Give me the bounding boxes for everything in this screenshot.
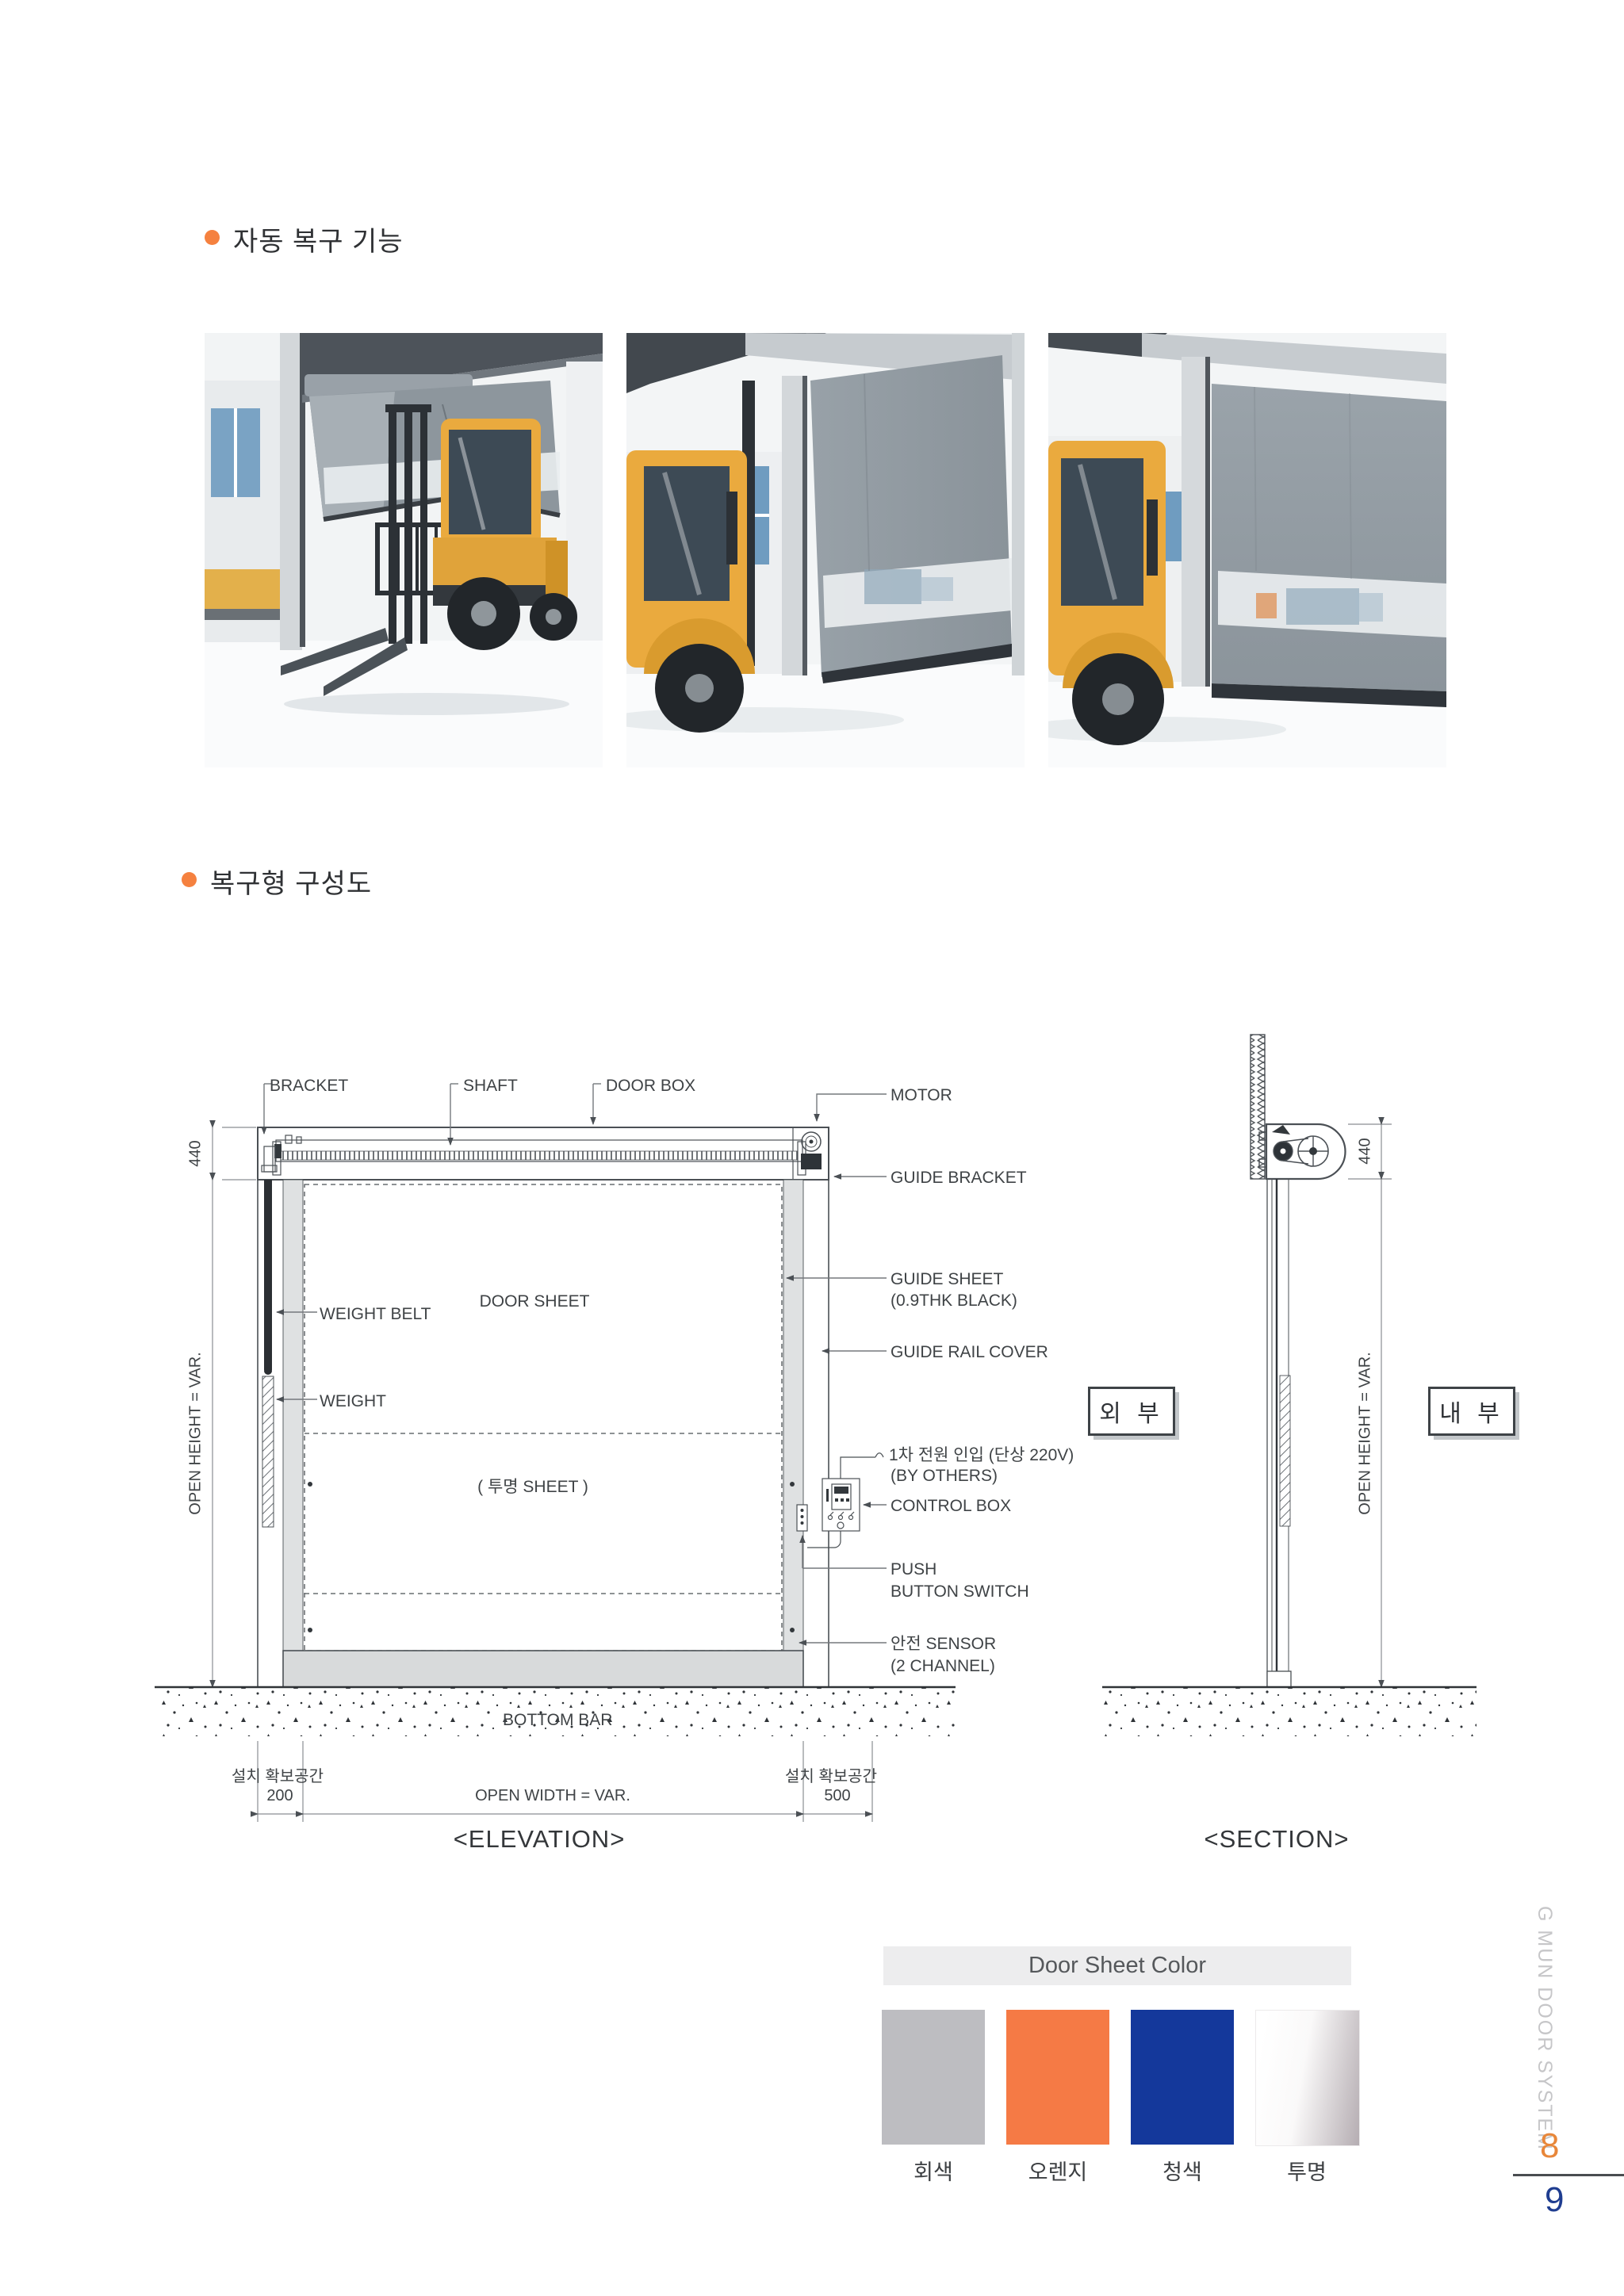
sidebar-vertical-text: G MUN DOOR SYSTEM: [1533, 1906, 1556, 2151]
exterior-label-box: 외 부: [1088, 1387, 1175, 1436]
label-2-channel: (2 CHANNEL): [891, 1655, 995, 1677]
label-guide-sheet: GUIDE SHEET: [891, 1269, 1003, 1290]
bullet-icon: [205, 230, 220, 245]
interior-label-box: 내 부: [1428, 1387, 1515, 1436]
label-door-sheet: DOOR SHEET: [480, 1291, 590, 1312]
swatch-blue: [1131, 2010, 1234, 2145]
swatch-gray: [882, 2010, 985, 2145]
dim-open-width: OPEN WIDTH = VAR.: [475, 1787, 630, 1805]
door-frame: [1182, 357, 1208, 687]
label-weight: WEIGHT: [320, 1391, 386, 1412]
dim-open-height-elevation: OPEN HEIGHT = VAR.: [187, 1352, 205, 1514]
page-number-divider: [1513, 2174, 1624, 2176]
catalog-page: 자동 복구 기능: [0, 0, 1624, 2296]
label-guide-bracket: GUIDE BRACKET: [891, 1167, 1027, 1188]
dim-440-section: 440: [1357, 1138, 1375, 1164]
swatch-orange: [1006, 2010, 1109, 2145]
label-bracket: BRACKET: [270, 1075, 348, 1096]
exterior-label: 외 부: [1099, 1394, 1164, 1429]
section-title-diagram: 복구형 구성도: [210, 862, 372, 901]
interior-label: 내 부: [1439, 1394, 1504, 1429]
color-chart-title: Door Sheet Color: [1028, 1953, 1206, 1979]
section-title-auto-recovery: 자동 복구 기능: [233, 220, 404, 258]
label-push: PUSH: [891, 1559, 936, 1580]
label-shaft: SHAFT: [463, 1075, 518, 1096]
door-frame-left: [280, 333, 302, 650]
install-space-left: 설치 확보공간: [232, 1763, 324, 1786]
label-clear-sheet: ( 투명 SHEET ): [477, 1476, 588, 1498]
dim-500: 500: [824, 1787, 850, 1805]
closed-door-sheet: [1212, 384, 1446, 707]
released-door-sheet: [810, 355, 1013, 683]
label-weight-belt: WEIGHT BELT: [320, 1303, 431, 1325]
swatch-label-blue: 청색: [1162, 2155, 1202, 2186]
swatch-label-clear: 투명: [1287, 2155, 1327, 2186]
swatch-label-gray: 회색: [913, 2155, 953, 2186]
label-guide-sheet-2: (0.9THK BLACK): [891, 1290, 1017, 1311]
label-primary-power: 1차 전원 인입 (단상 220V): [889, 1445, 1074, 1466]
page-number-current: 8: [1540, 2126, 1559, 2166]
label-guide-rail-cover: GUIDE RAIL COVER: [891, 1341, 1048, 1363]
install-space-right: 설치 확보공간: [785, 1763, 877, 1786]
label-bottom-bar: BOTTOM BAR: [503, 1709, 612, 1731]
label-control-box: CONTROL BOX: [891, 1495, 1011, 1517]
photo-release: [626, 333, 1025, 767]
bullet-icon: [182, 872, 197, 887]
label-by-others: (BY OTHERS): [891, 1465, 998, 1487]
swatch-label-orange: 오렌지: [1028, 2155, 1088, 2186]
caption-elevation: <ELEVATION>: [454, 1825, 626, 1854]
label-door-box: DOOR BOX: [606, 1075, 695, 1096]
background-building: [205, 381, 280, 642]
photo-recovered: [1048, 333, 1446, 767]
swatch-clear: [1255, 2010, 1360, 2146]
technical-drawing: [119, 1023, 1624, 1879]
color-chart-title-band: Door Sheet Color: [883, 1946, 1351, 1985]
dim-440-elevation: 440: [187, 1140, 205, 1166]
dim-200: 200: [266, 1787, 293, 1805]
photo-impact: [205, 333, 603, 767]
caption-section: <SECTION>: [1205, 1825, 1350, 1854]
label-safety-sensor: 안전 SENSOR: [891, 1633, 996, 1655]
label-button-switch: BUTTON SWITCH: [891, 1581, 1029, 1602]
door-frame: [782, 376, 806, 675]
dim-open-height-section: OPEN HEIGHT = VAR.: [1357, 1352, 1375, 1514]
label-motor: MOTOR: [891, 1085, 952, 1106]
page-number-next: 9: [1545, 2180, 1564, 2220]
